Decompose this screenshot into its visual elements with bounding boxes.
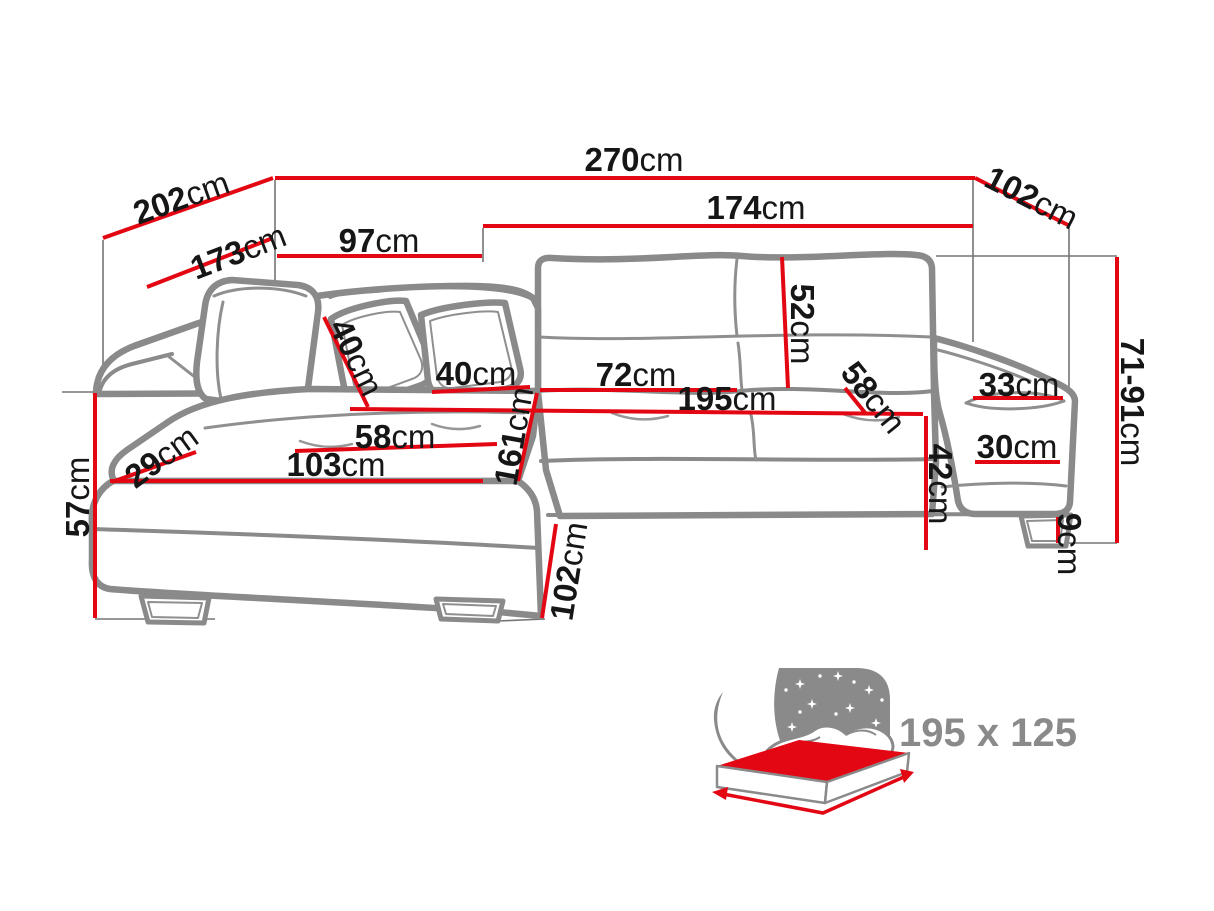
star-dot <box>818 674 821 677</box>
dimension-label-9cm: 9cm <box>1051 513 1088 575</box>
sofa-dimension-diagram: 270cm 202cm 173cm 97cm 174cm 102cm 52cm … <box>0 0 1214 911</box>
arrowhead-left <box>712 787 728 800</box>
dimension-label-72cm: 72cm <box>596 356 677 393</box>
star-dot <box>834 712 837 715</box>
dimension-label-102cm-depth: 102cm <box>542 519 594 623</box>
dimension-label-202cm: 202cm <box>128 163 234 231</box>
dimension-label-103cm: 103cm <box>286 446 385 483</box>
star-dot <box>880 698 883 701</box>
dimension-label-97cm: 97cm <box>339 222 420 259</box>
chaise-leg-right-inner <box>443 604 496 616</box>
seat-front-edge <box>541 459 935 461</box>
arrowhead-right <box>900 769 914 783</box>
star-dot <box>784 688 787 691</box>
dimension-label-57cm: 57cm <box>59 457 96 538</box>
star-dot <box>852 680 855 683</box>
dimension-label-102cm-top: 102cm <box>979 158 1084 236</box>
chaise-leg-left-inner <box>148 602 202 618</box>
dimension-label-52cm: 52cm <box>784 284 821 365</box>
dimension-label-30cm: 30cm <box>977 428 1058 465</box>
dimension-label-33cm: 33cm <box>979 366 1060 403</box>
dimension-label-42cm: 42cm <box>922 444 959 525</box>
dimension-label-195cm: 195cm <box>677 380 776 417</box>
sleeping-function-icon: 195 x 125 <box>712 668 1077 813</box>
dimension-label-270cm: 270cm <box>584 141 683 178</box>
diagram-canvas: 270cm 202cm 173cm 97cm 174cm 102cm 52cm … <box>0 0 1214 911</box>
dimension-label-71-91cm: 71-91cm <box>1114 338 1151 466</box>
dimension-label-40cm-seat: 40cm <box>436 355 517 392</box>
bed-size-label: 195 x 125 <box>899 711 1077 755</box>
star-dot <box>798 710 801 713</box>
guide-floor-chaise-right <box>498 619 545 621</box>
dimension-label-174cm: 174cm <box>706 189 805 226</box>
